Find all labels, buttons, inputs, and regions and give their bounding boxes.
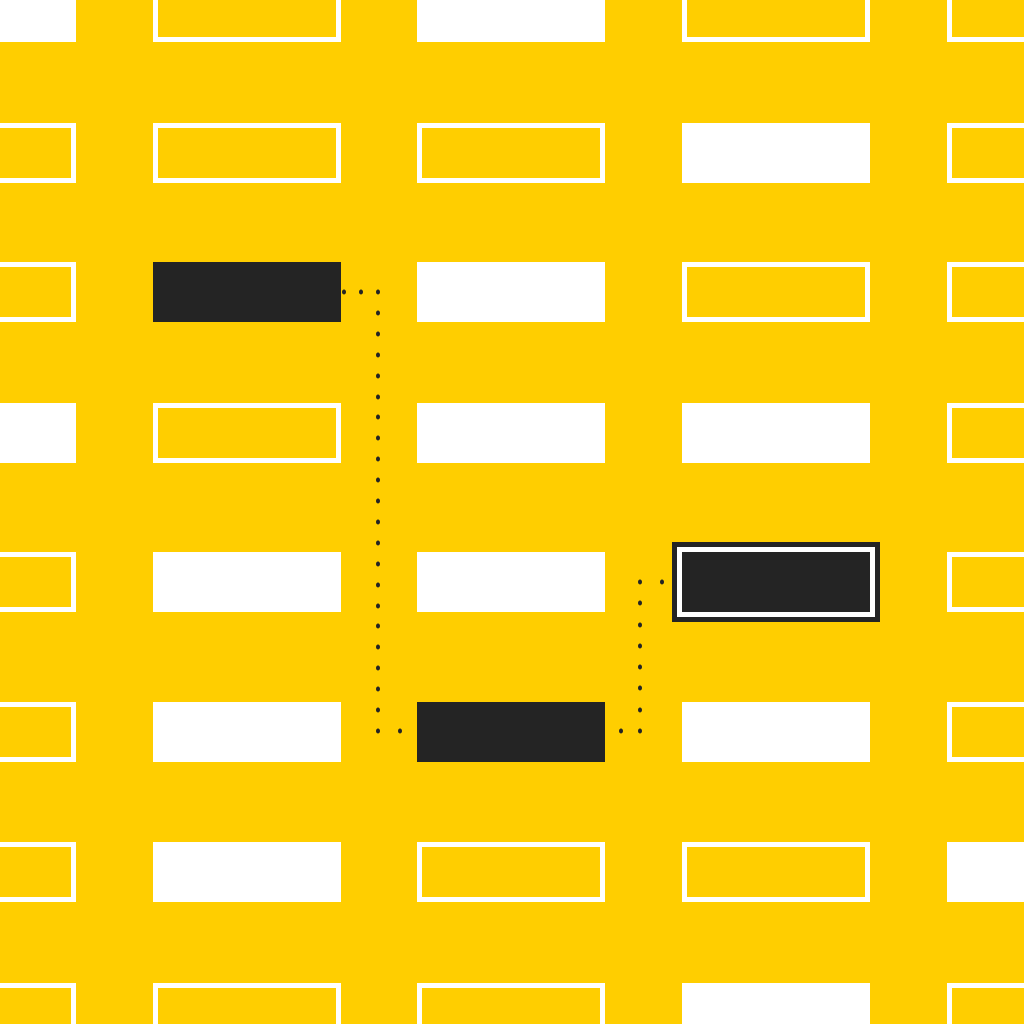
- connector-dot: [376, 394, 380, 399]
- connector-dot: [376, 290, 380, 295]
- connector-dot: [376, 540, 380, 545]
- connector-dot: [376, 687, 380, 692]
- connector-dot: [376, 331, 380, 336]
- connector-dot: [638, 729, 642, 734]
- connector-dot: [638, 601, 642, 606]
- connector-dot: [376, 415, 380, 420]
- connector-dot: [638, 686, 642, 691]
- connector-dot: [376, 478, 380, 483]
- connector-dot: [638, 643, 642, 648]
- connector-dot: [376, 603, 380, 608]
- connector-dot: [376, 352, 380, 357]
- connector-dot: [398, 729, 402, 734]
- connector-dot: [376, 310, 380, 315]
- connector-dot: [376, 666, 380, 671]
- connector-dot: [376, 729, 380, 734]
- connector-dot: [638, 580, 642, 585]
- connector-dot: [376, 499, 380, 504]
- connector-dot: [359, 290, 363, 295]
- connector-dot: [638, 707, 642, 712]
- connector-dot: [376, 624, 380, 629]
- connector-dot: [376, 561, 380, 566]
- connector-dot: [638, 622, 642, 627]
- connector-layer: [0, 0, 1024, 1024]
- connector-dot: [376, 457, 380, 462]
- connector-dot: [376, 645, 380, 650]
- connector-dot: [619, 729, 623, 734]
- connector-dot: [376, 582, 380, 587]
- abstract-grid-illustration: [0, 0, 1024, 1024]
- connector-dot: [638, 665, 642, 670]
- connector-dot: [376, 519, 380, 524]
- connector-dot: [342, 290, 346, 295]
- connector-dot: [660, 580, 664, 585]
- connector-dot: [376, 373, 380, 378]
- connector-dot: [376, 436, 380, 441]
- connector-dot: [376, 708, 380, 713]
